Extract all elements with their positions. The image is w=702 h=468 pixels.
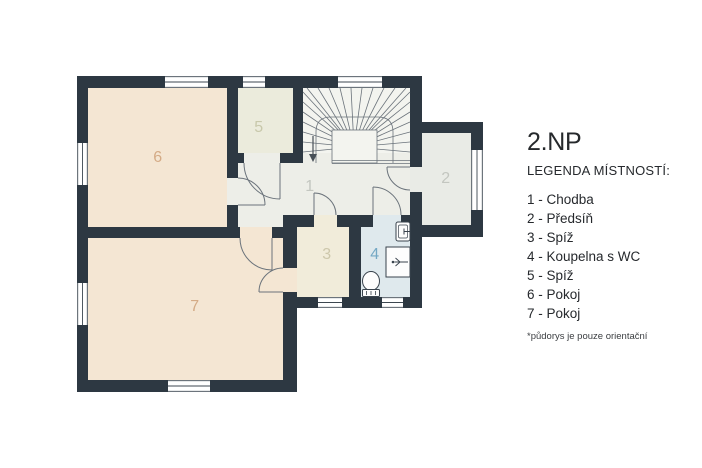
legend-item-1: 1 - Chodba <box>527 190 699 209</box>
wall-room67-divider-a <box>88 227 240 238</box>
room-label-7: 7 <box>190 298 199 315</box>
legend-heading: LEGENDA MÍSTNOSTÍ: <box>527 163 699 178</box>
window-bottom-room7 <box>168 380 210 392</box>
window-top-room6 <box>165 76 208 88</box>
room-label-1: 1 <box>305 178 314 195</box>
stair-landing <box>332 130 377 163</box>
wall-room67-divider-b <box>272 227 283 238</box>
legend-item-6: 6 - Pokoj <box>527 285 699 304</box>
window-bottom-room3 <box>318 297 342 308</box>
wall-room6-right-a <box>227 88 238 178</box>
window-left-room6 <box>77 143 88 185</box>
room-label-6: 6 <box>153 149 162 166</box>
wall-stair-right-upper <box>410 76 422 167</box>
window-left-room7 <box>77 283 88 325</box>
window-bottom-room4 <box>382 297 403 308</box>
legend-footnote: *půdorys je pouze orientační <box>527 331 699 342</box>
legend-item-5: 5 - Spíž <box>527 266 699 285</box>
wall-room5-bottom-a <box>227 153 244 163</box>
wall-right-lower <box>410 192 422 308</box>
room-floor-5 <box>227 76 303 163</box>
floor-title: 2.NP <box>527 128 699 157</box>
toilet-icon <box>363 272 380 297</box>
legend-item-4: 4 - Koupelna s WC <box>527 247 699 266</box>
wall-stair-left <box>293 88 303 163</box>
room-label-5: 5 <box>254 119 263 136</box>
window-right-room2 <box>471 150 483 210</box>
room-label-3: 3 <box>322 246 331 263</box>
floor-plan-page: 1 2 3 4 5 6 7 2.NP LEGENDA MÍSTNOSTÍ: 1 … <box>0 0 702 468</box>
legend-item-3: 3 - Spíž <box>527 228 699 247</box>
sink-icon <box>396 222 410 241</box>
wall-left <box>77 76 88 392</box>
window-top-staircase <box>338 76 382 88</box>
shower-icon <box>386 247 410 277</box>
legend-item-2: 2 - Předsíň <box>527 209 699 228</box>
room-label-2: 2 <box>441 170 450 187</box>
legend-items: 1 - Chodba 2 - Předsíň 3 - Spíž 4 - Koup… <box>527 190 699 323</box>
wall-hall-bottom-a <box>297 215 314 227</box>
room-floor-7 <box>77 227 297 392</box>
legend-panel: 2.NP LEGENDA MÍSTNOSTÍ: 1 - Chodba 2 - P… <box>527 128 699 342</box>
wall-room34-divider <box>349 215 361 297</box>
window-top-room5 <box>243 76 265 88</box>
legend-item-7: 7 - Pokoj <box>527 304 699 323</box>
room-label-4: 4 <box>370 246 379 263</box>
wall-room7-right-b <box>283 292 297 392</box>
wall-room7-right-a <box>283 215 297 268</box>
